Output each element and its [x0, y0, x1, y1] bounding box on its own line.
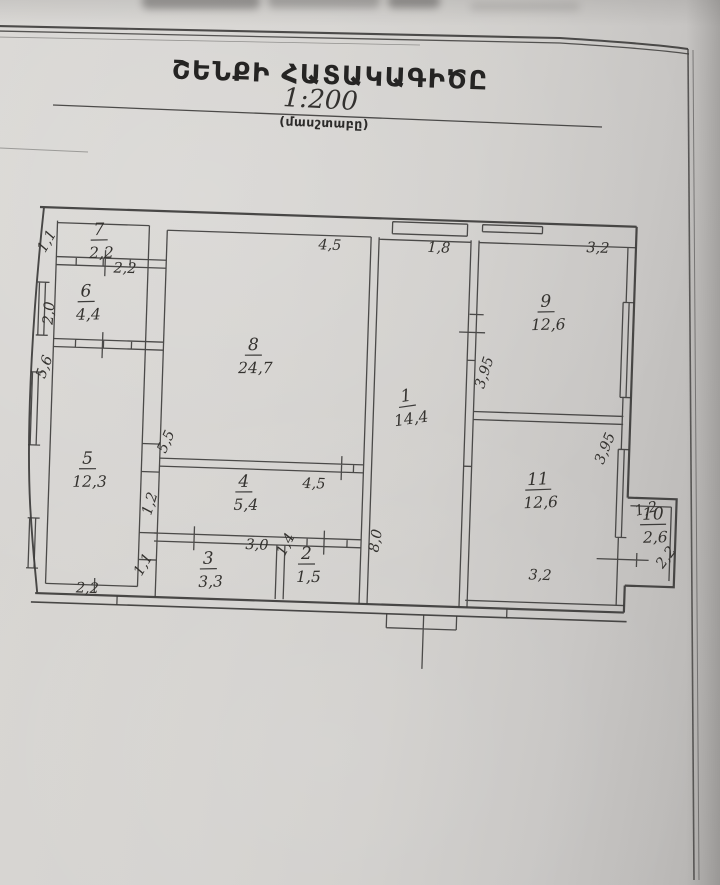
- dimension-13-8,0: 8,0: [366, 528, 386, 553]
- room-6-label: 64,4: [74, 281, 100, 323]
- room-9-area: 12,6: [531, 315, 566, 334]
- dimension-11-1,4: 1,4: [274, 531, 299, 559]
- dimension-16-3,95: 3,95: [592, 431, 619, 467]
- room-6-area: 4,4: [75, 305, 101, 323]
- dimension-2-2,0: 2,0: [40, 301, 58, 326]
- dimension-4-2,2: 2,2: [75, 580, 100, 597]
- dimension-6-5,5: 5,5: [155, 428, 179, 456]
- dimension-12-1,8: 1,8: [427, 240, 451, 257]
- room-1-area: 14,4: [393, 407, 430, 430]
- room-8-number: 8: [248, 335, 259, 355]
- room-10-area: 2,6: [642, 528, 668, 546]
- room-4-area: 5,4: [234, 496, 259, 514]
- room-2-area: 1,5: [296, 568, 321, 586]
- interior-walls: [21, 210, 680, 677]
- room-11-number: 11: [527, 469, 549, 490]
- dimension-15-3,95: 3,95: [472, 355, 497, 391]
- room-11-area: 12,6: [523, 493, 558, 512]
- handwritten-labels: 72,264,4512,3824,745,433,321,5114,4912,6…: [23, 217, 690, 616]
- dimension-10-3,0: 3,0: [245, 537, 269, 554]
- room-8-area: 24,7: [237, 359, 273, 377]
- scanned-floor-plan-page: ՇԵՆՔԻ ՀԱՏԱԿԱԳԻԾԸ 1:200 (մասշտաբը): [0, 0, 720, 885]
- room-8-label: 824,7: [237, 335, 273, 377]
- dimension-0-2,2: 2,2: [112, 260, 137, 277]
- dimension-9-1,1: 1,1: [131, 551, 156, 579]
- dimension-7-4,5: 4,5: [301, 476, 326, 493]
- room-7-area: 2,2: [88, 244, 114, 262]
- room-6-number: 6: [80, 281, 91, 301]
- room-7-number: 7: [93, 220, 104, 240]
- room-4-number: 4: [237, 472, 249, 492]
- scale-value: 1:200: [282, 83, 358, 117]
- room-3-number: 3: [203, 549, 214, 569]
- room-3-area: 3,3: [198, 572, 223, 590]
- scale-caption: (մասշտաբը): [279, 113, 369, 131]
- room-4-label: 45,4: [233, 472, 258, 514]
- room-2-label: 21,5: [296, 544, 321, 586]
- room-1-number: 1: [399, 386, 413, 407]
- plan-group: 72,264,4512,3824,745,433,321,5114,4912,6…: [21, 207, 690, 677]
- room-5-area: 12,3: [72, 473, 107, 491]
- room-9-number: 9: [540, 292, 551, 312]
- dimension-5-4,5: 4,5: [317, 237, 342, 254]
- room-5-number: 5: [82, 449, 93, 469]
- room-9-label: 912,6: [530, 291, 565, 334]
- floor-plan-drawing: ՇԵՆՔԻ ՀԱՏԱԿԱԳԻԾԸ 1:200 (մասշտաբը): [0, 0, 720, 885]
- dimension-14-3,2: 3,2: [586, 240, 610, 257]
- room-7-label: 72,2: [87, 220, 113, 262]
- room-2-number: 2: [300, 544, 312, 564]
- title-block: ՇԵՆՔԻ ՀԱՏԱԿԱԳԻԾԸ 1:200 (մասշտաբը): [53, 55, 602, 131]
- room-5-label: 512,3: [72, 449, 107, 491]
- room-1-label: 114,4: [390, 384, 430, 430]
- room-3-label: 33,3: [198, 549, 224, 591]
- dimension-17-3,2: 3,2: [528, 567, 552, 584]
- room-11-label: 1112,6: [522, 469, 558, 512]
